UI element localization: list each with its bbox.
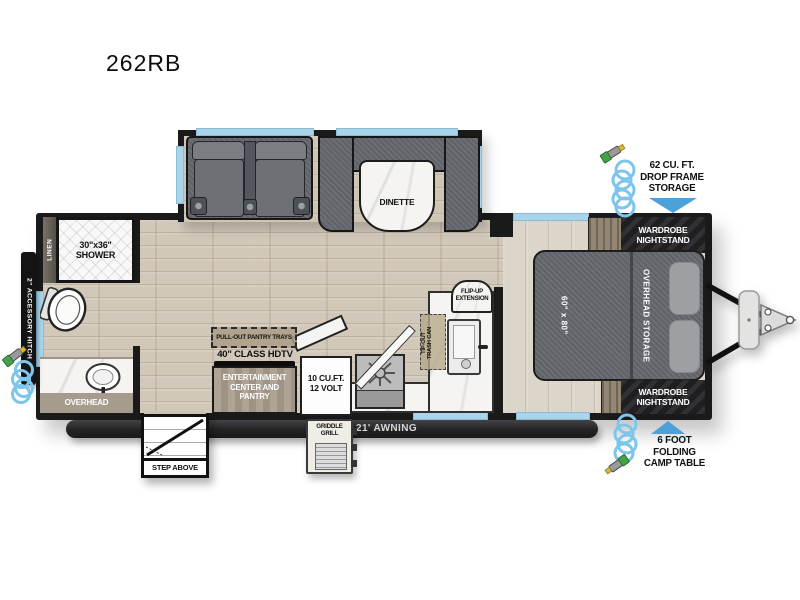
flip-up-line2: EXTENSION [453, 296, 491, 303]
griddle-grill: GRIDDLE GRILL [306, 419, 353, 474]
refrigerator: 10 CU.FT. 12 VOLT [300, 356, 352, 416]
bathroom-wall-lower [133, 346, 140, 414]
hdtv-label: 40" CLASS HDTV [206, 350, 304, 361]
step-above-label: STEP ABOVE [144, 458, 206, 475]
vanity-overhead-label: OVERHEAD [65, 398, 109, 407]
pantry-trays-label: PULL-OUT PANTRY TRAYS [211, 327, 297, 348]
wardrobe-nightstand-bottom: WARDROBE NIGHTSTAND [621, 380, 705, 414]
camp-table-label: 6 FOOT FOLDING CAMP TABLE [622, 435, 727, 470]
entertainment-line2: CENTER AND [214, 383, 295, 393]
kitchen-bedroom-wall [494, 287, 503, 414]
griddle-knob [351, 428, 357, 435]
cupholder-center [243, 199, 257, 215]
fridge-line2: 12 VOLT [302, 384, 350, 394]
drop-frame-storage-label: 62 CU. FT. DROP FRAME STORAGE [617, 160, 727, 195]
kitchen-sink-icon [447, 319, 481, 375]
steps-diagonal [144, 417, 206, 458]
window-kitchen-bottom [413, 412, 488, 420]
sink-drain [461, 359, 471, 369]
entertainment-line3: PANTRY [214, 392, 295, 402]
flip-up-extension: FLIP-UP EXTENSION [451, 280, 493, 313]
entertainment-center: ENTERTAINMENT CENTER AND PANTRY [212, 366, 297, 414]
flip-up-line1: FLIP-UP [453, 289, 491, 296]
entry-steps: STEP ABOVE [141, 414, 209, 478]
griddle-knob [351, 444, 357, 451]
cupholder-left [190, 197, 207, 215]
floorplan-title: 262RB [106, 50, 181, 77]
window-slideout-top-left [196, 128, 314, 136]
window-bedroom-top [513, 213, 589, 221]
linen-label: LINEN [46, 239, 53, 261]
floorplan-262rb: 262RB 21' AWNING LINEN 30"x36" SHOWER [0, 0, 800, 600]
tip-out-trash-label: TIP-OUT TRASH CAN [420, 314, 446, 370]
pantry-trays-text: PULL-OUT PANTRY TRAYS [213, 334, 295, 341]
toilet-icon [40, 283, 90, 335]
griddle-knob [351, 460, 357, 467]
shower-label: SHOWER [76, 250, 115, 260]
shower-size: 30"x36" [76, 240, 115, 250]
shower: 30"x36" SHOWER [56, 217, 135, 283]
linen-cabinet: LINEN [43, 217, 56, 283]
griddle-line1: GRIDDLE [308, 423, 351, 430]
water-hose-rear-icon [0, 346, 44, 404]
dinette-bench-left [318, 136, 354, 232]
bedroom-cabinet-top [588, 217, 623, 254]
vanity-overhead-cabinet: OVERHEAD [40, 393, 133, 413]
theater-seating [186, 136, 313, 220]
pillow [669, 262, 700, 315]
wardrobe-nightstand-top: WARDROBE NIGHTSTAND [621, 217, 705, 253]
sink-faucet [478, 345, 488, 349]
pillow [669, 320, 700, 373]
seat-back-left [192, 141, 245, 160]
entertainment-line1: ENTERTAINMENT [214, 373, 295, 383]
camp-table-arrow-icon [651, 421, 685, 434]
wall-stub [490, 217, 513, 237]
bed-size-label: 60" x 80" [559, 296, 568, 335]
dinette-bench-right [444, 136, 480, 232]
seat-back-right [254, 141, 307, 160]
awning-label: 21' AWNING [356, 423, 417, 435]
storage-arrow-icon [649, 198, 697, 213]
window-slideout-top-right [336, 128, 458, 136]
dinette-table: DINETTE [359, 160, 435, 232]
dinette-label: DINETTE [361, 198, 433, 208]
trailer-hitch [705, 275, 800, 375]
griddle-grate [315, 443, 347, 470]
overhead-storage-label: OVERHEAD STORAGE [641, 269, 650, 362]
trash-line2: TRASH CAN [427, 315, 433, 371]
bed: 60" x 80" OVERHEAD STORAGE [533, 250, 705, 381]
window-slideout-left [176, 146, 184, 204]
window-bedroom-bottom [516, 412, 590, 420]
cupholder-right [293, 197, 310, 215]
bedroom-cabinet-bottom [601, 380, 623, 414]
griddle-line2: GRILL [308, 430, 351, 437]
